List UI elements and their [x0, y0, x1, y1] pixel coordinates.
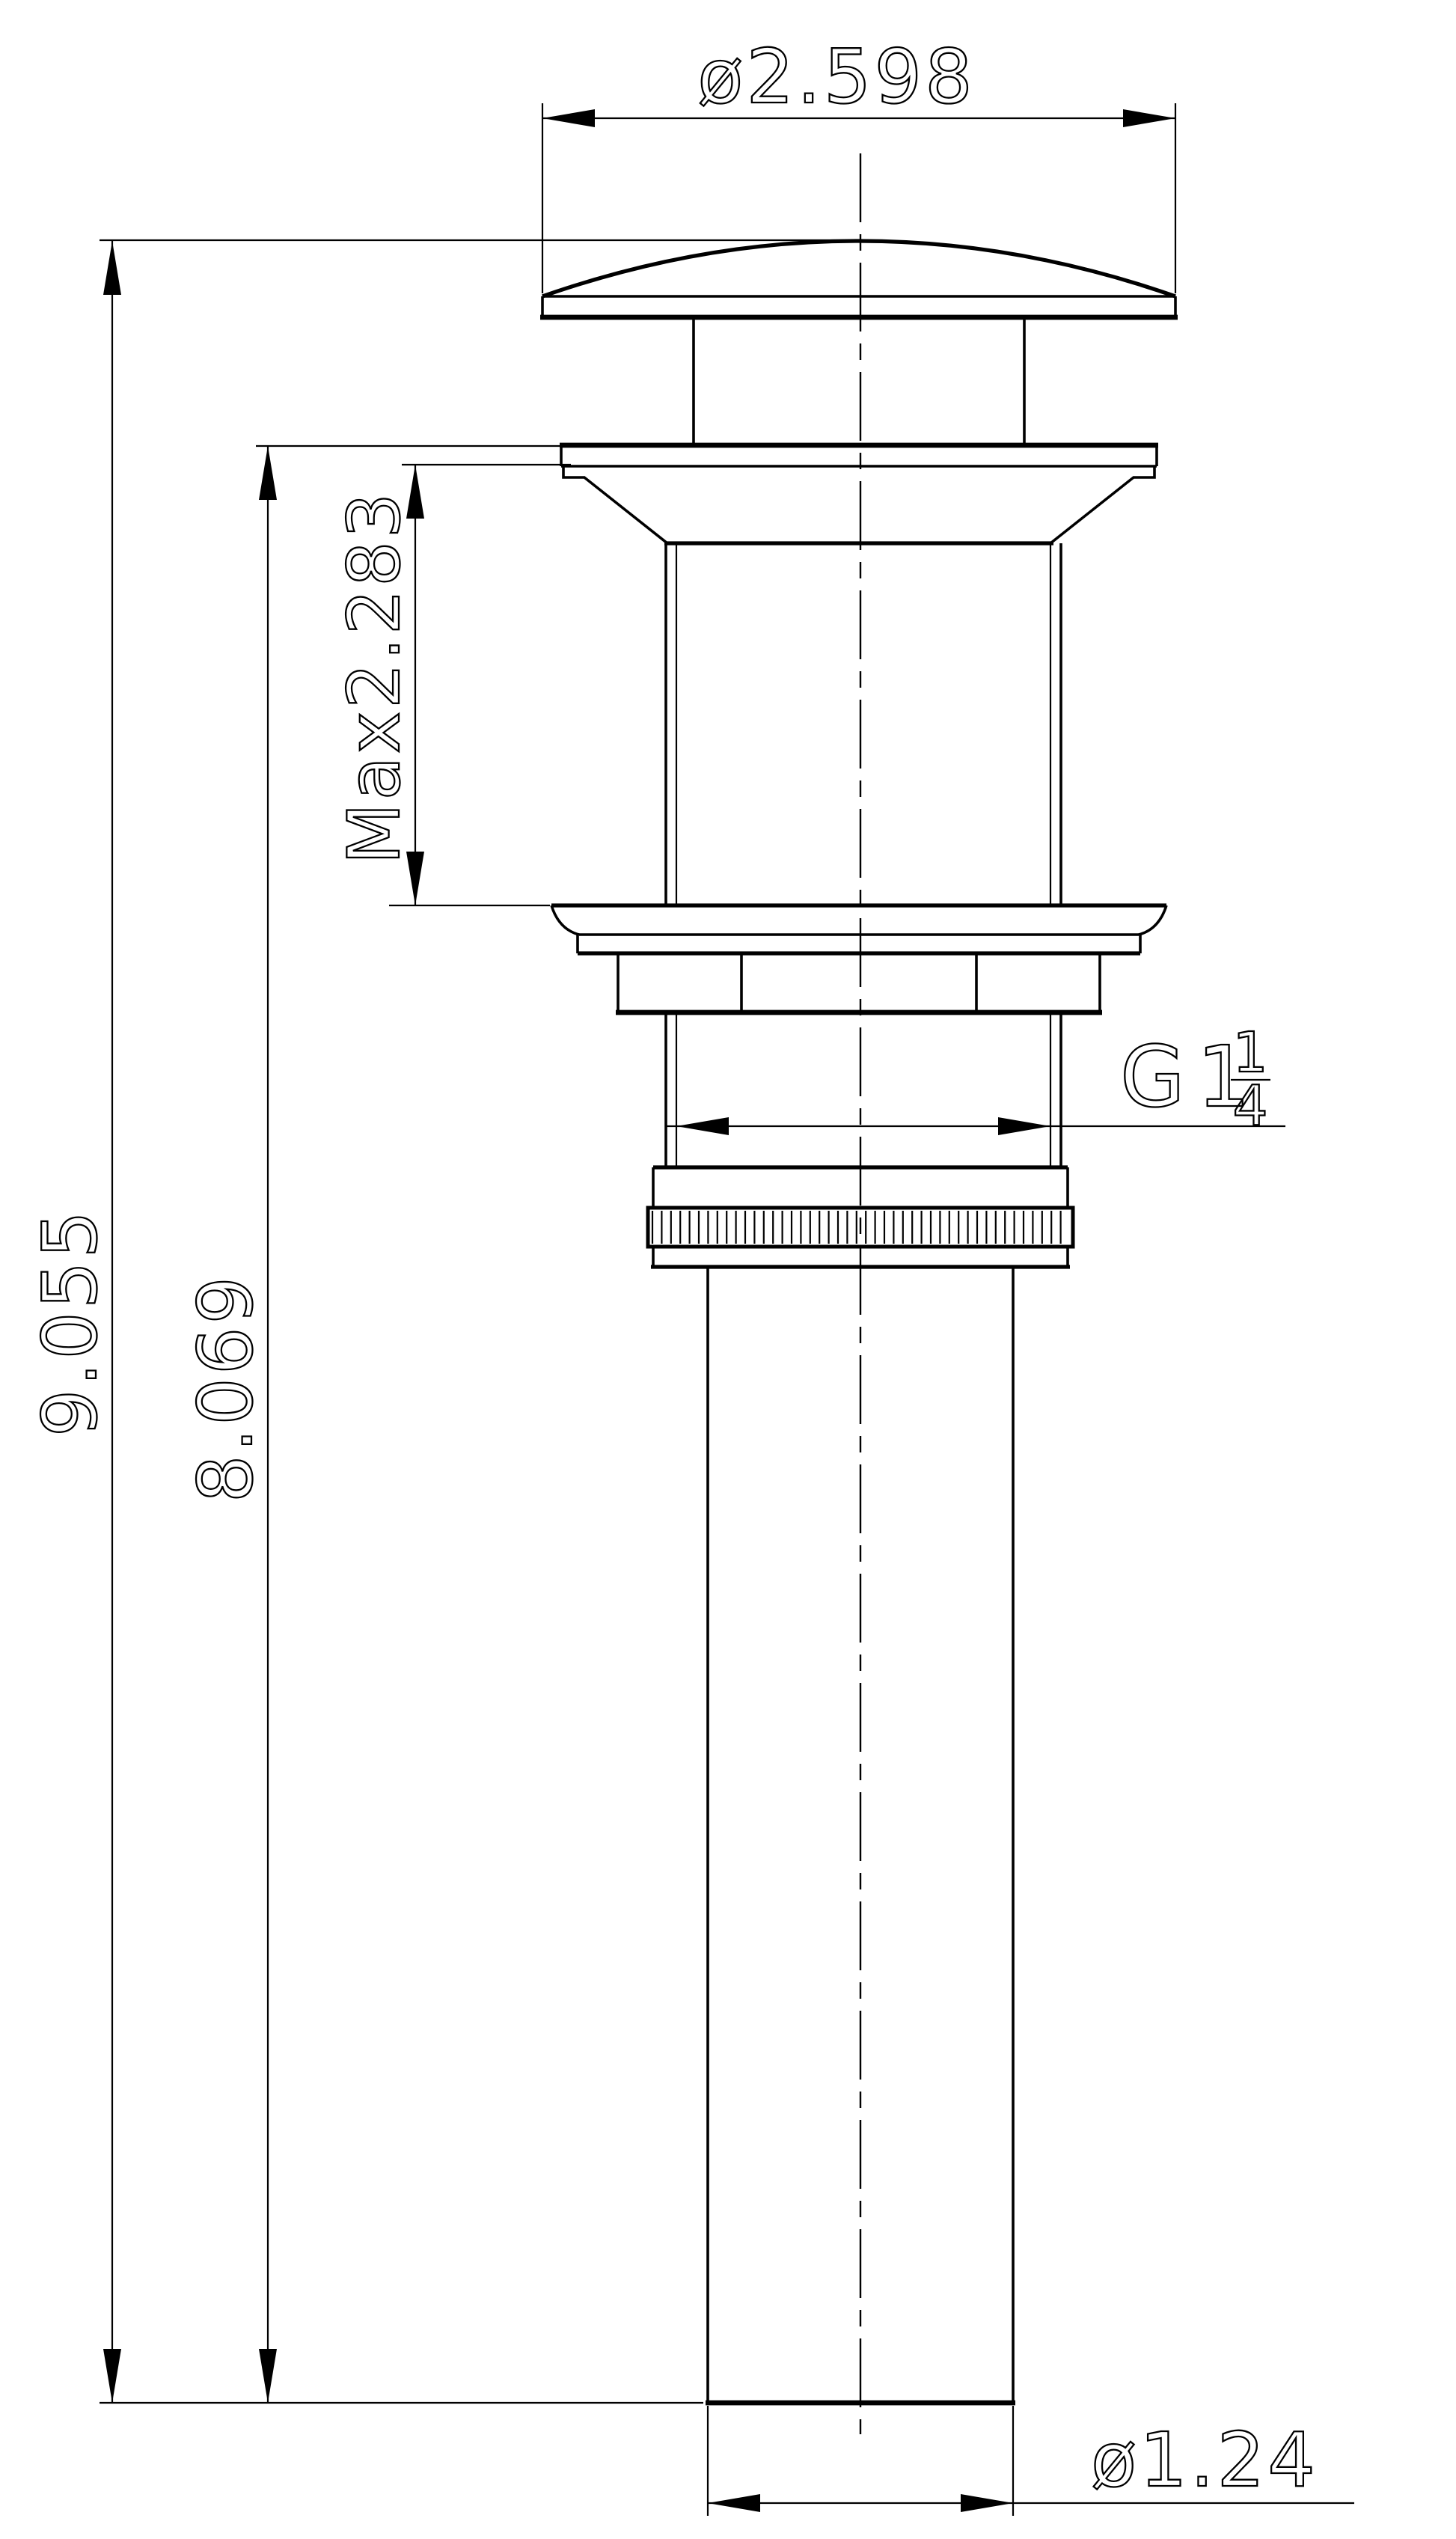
- dim-cap-arrow-right: [1123, 109, 1175, 127]
- dim-below-arrow-top: [259, 446, 277, 500]
- cap-dome: [542, 241, 1175, 296]
- dim-cap-diameter-label: ø2.598: [697, 33, 975, 120]
- dim-max-mounting: Max2.283: [334, 465, 571, 905]
- dim-max-mounting-label: Max2.283: [334, 490, 416, 864]
- dim-cap-diameter: ø2.598: [542, 33, 1175, 293]
- dim-overall-arrow-top: [103, 241, 121, 295]
- dim-tail-diameter-label: ø1.24: [1091, 2416, 1318, 2504]
- flange-cone-right: [1050, 466, 1154, 543]
- dim-overall-height-label: 9.055: [26, 1208, 114, 1437]
- flange-cone-left: [563, 466, 667, 543]
- dim-thread-size: G1 1 4: [666, 1021, 1285, 1138]
- dim-tail-diameter: ø1.24: [708, 2406, 1354, 2516]
- thread-fraction-denominator: 4: [1232, 1074, 1267, 1138]
- dim-below-flange-label: 8.069: [182, 1274, 269, 1503]
- dim-cap-arrow-left: [542, 109, 595, 127]
- dim-overall-arrow-bottom: [103, 2349, 121, 2403]
- washer-left-curve: [551, 905, 579, 935]
- dim-thread-arrow-right: [998, 1117, 1050, 1135]
- dim-tail-arrow-left: [708, 2494, 760, 2512]
- dim-tail-arrow-right: [961, 2494, 1013, 2512]
- dim-overall-height: 9.055: [26, 240, 860, 2403]
- dim-below-arrow-bottom: [259, 2349, 277, 2403]
- dim-thread-arrow-left: [676, 1117, 729, 1135]
- drawing-page: ø2.598 9.055 8.069 Max2.283 G1 1 4: [0, 0, 1456, 2539]
- washer-right-curve: [1139, 905, 1166, 935]
- knurl-hatch-lines: [652, 1211, 1061, 1244]
- drain-technical-drawing: ø2.598 9.055 8.069 Max2.283 G1 1 4: [0, 0, 1456, 2539]
